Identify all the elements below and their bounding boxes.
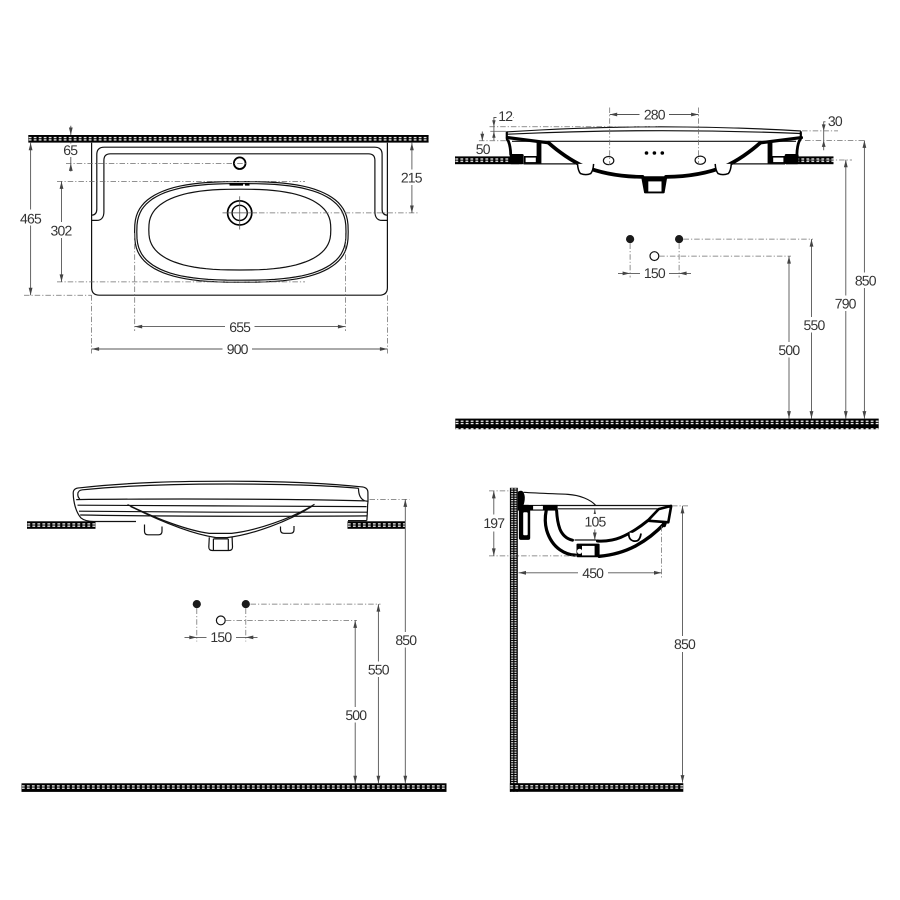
- svg-text:790: 790: [835, 296, 857, 312]
- svg-text:450: 450: [582, 565, 604, 581]
- svg-text:465: 465: [20, 211, 42, 227]
- svg-text:500: 500: [778, 342, 800, 358]
- svg-text:280: 280: [644, 106, 666, 122]
- svg-text:65: 65: [63, 142, 78, 158]
- svg-text:850: 850: [395, 632, 417, 648]
- svg-text:550: 550: [804, 317, 826, 333]
- svg-text:30: 30: [828, 113, 843, 129]
- svg-text:150: 150: [210, 629, 232, 645]
- svg-text:302: 302: [51, 223, 73, 239]
- svg-text:50: 50: [476, 141, 491, 157]
- svg-text:150: 150: [644, 265, 666, 281]
- svg-text:550: 550: [368, 661, 390, 677]
- svg-text:500: 500: [345, 707, 367, 723]
- svg-text:850: 850: [855, 273, 877, 289]
- svg-text:197: 197: [483, 515, 505, 531]
- svg-text:850: 850: [674, 636, 696, 652]
- svg-text:12: 12: [498, 108, 513, 124]
- svg-text:215: 215: [401, 170, 423, 186]
- svg-text:105: 105: [585, 514, 607, 530]
- svg-text:655: 655: [229, 319, 251, 335]
- svg-text:900: 900: [227, 341, 249, 357]
